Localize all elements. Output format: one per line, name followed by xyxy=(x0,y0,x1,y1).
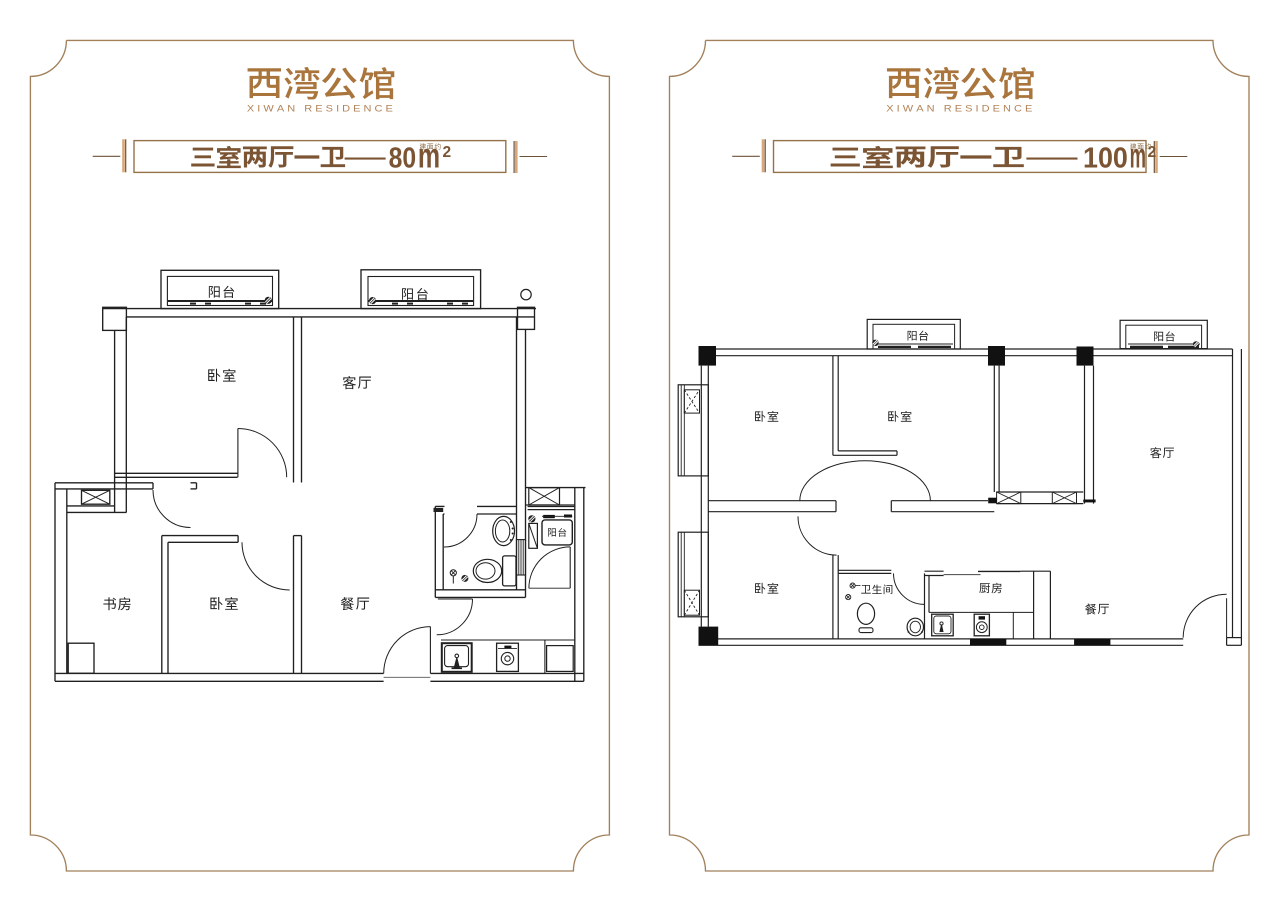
svg-text:2: 2 xyxy=(443,144,452,161)
svg-text:X I W A N R E S I D E N C E: X I W A N R E S I D E N C E xyxy=(886,104,1032,115)
svg-text:80: 80 xyxy=(389,142,417,174)
svg-text:m: m xyxy=(1130,136,1146,175)
svg-text:X I W A N R E S I D E N C E: X I W A N R E S I D E N C E xyxy=(247,104,393,115)
svg-text:m: m xyxy=(418,136,440,175)
svg-text:100: 100 xyxy=(1083,142,1128,174)
